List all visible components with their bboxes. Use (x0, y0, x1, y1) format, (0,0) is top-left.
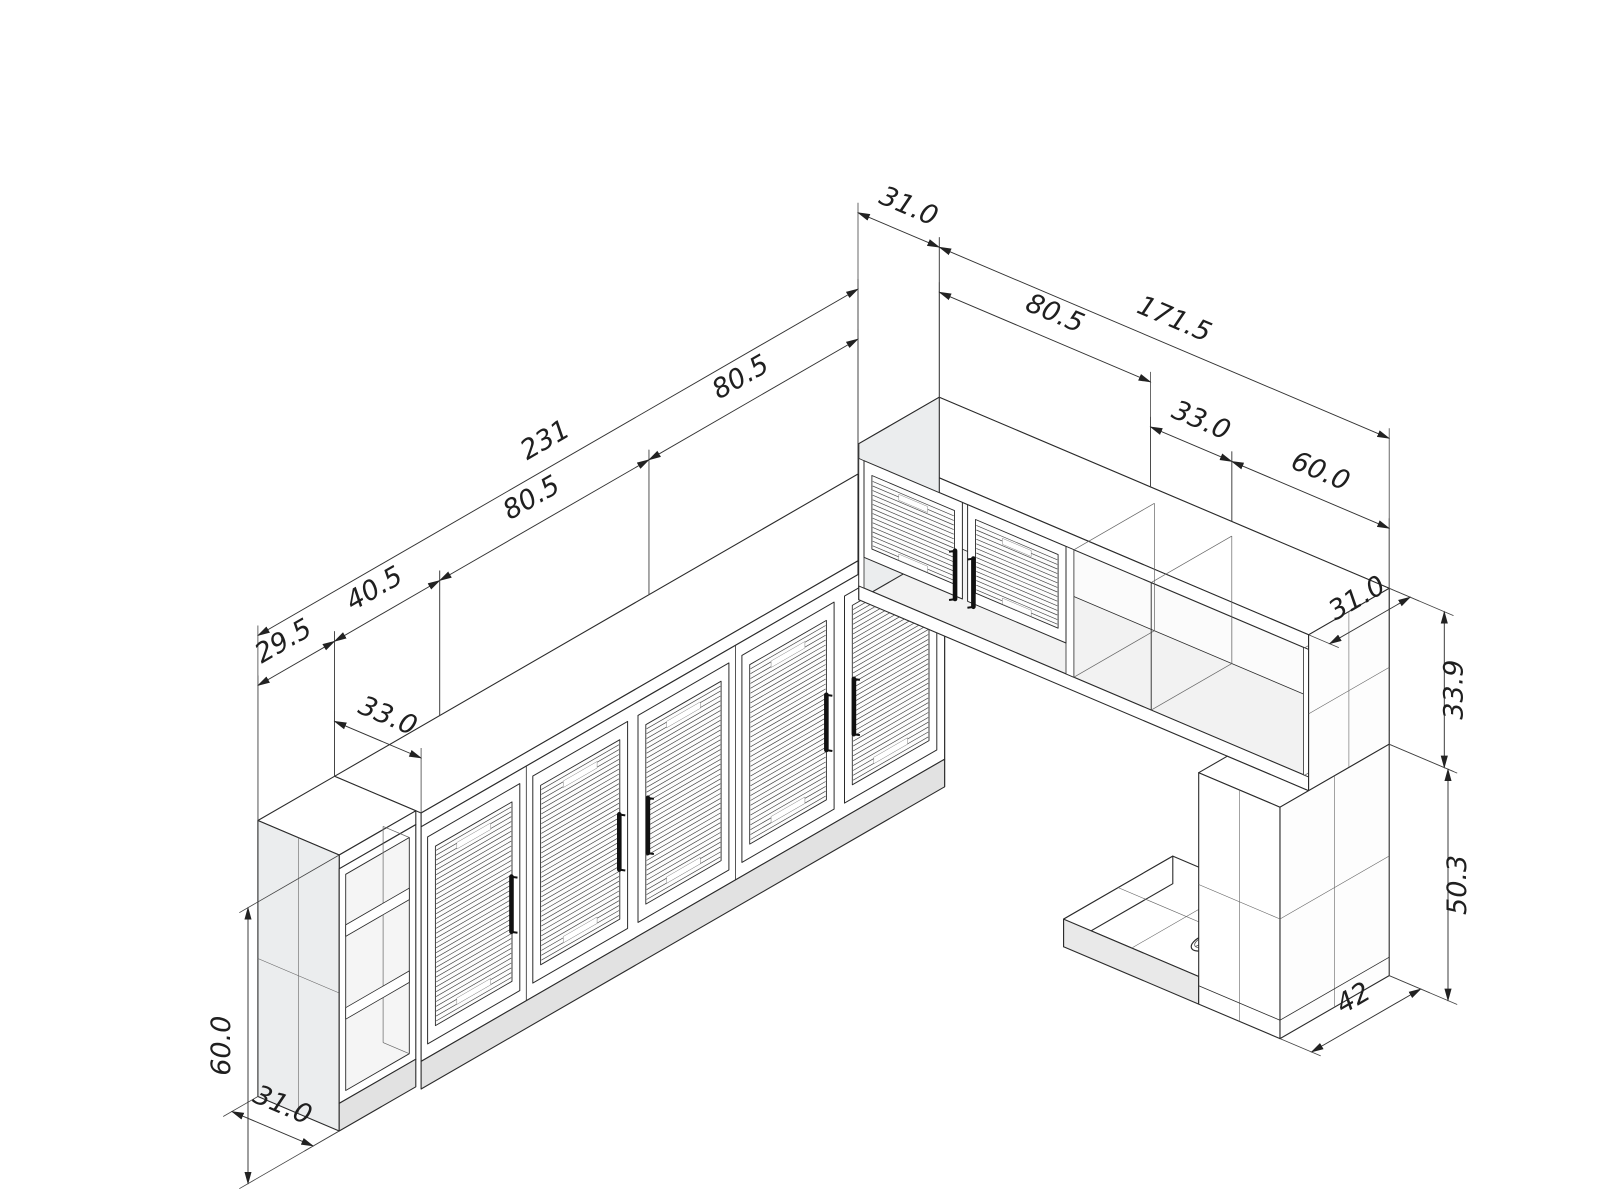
dim-left-segment-29-5: 29.5 (250, 613, 318, 670)
dim-right-shelf-unit-60: 60.0 (1287, 445, 1354, 497)
dim-corner-offset-31: 31.0 (875, 180, 942, 232)
dim-left-segment-80-5-a: 80.5 (498, 470, 566, 527)
isometric-cabinet-drawing: 29.5 40.5 80.5 80.5 231 33.0 31.0 60.0 3… (0, 0, 1600, 1200)
dim-right-total-171-5: 171.5 (1133, 290, 1216, 349)
dim-right-upper-height-33-9: 33.9 (1438, 660, 1469, 720)
dim-left-segment-80-5-b: 80.5 (707, 349, 775, 406)
dim-right-open-section-33: 33.0 (1167, 395, 1234, 447)
dim-left-total-231: 231 (515, 414, 575, 467)
dim-left-segment-40-5: 40.5 (341, 560, 409, 617)
dim-left-cabinet-depth-33: 33.0 (354, 690, 421, 742)
dim-right-lower-height-50-3: 50.3 (1442, 855, 1473, 915)
dim-left-height-60: 60.0 (206, 1016, 237, 1076)
cabinet-geometry (258, 397, 1389, 1131)
dim-right-wall-cab-80-5: 80.5 (1021, 288, 1088, 340)
drawing-page: 29.5 40.5 80.5 80.5 231 33.0 31.0 60.0 3… (0, 0, 1600, 1200)
